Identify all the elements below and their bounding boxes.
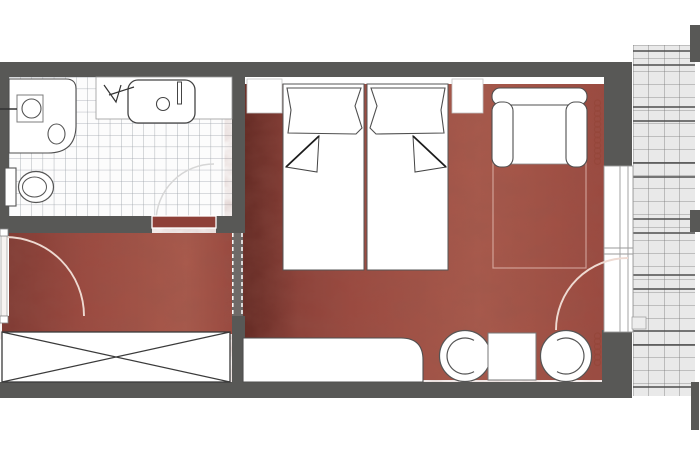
bathroom-door-leaf [152,216,216,228]
toilet-tank [5,168,16,206]
wall-top [0,62,632,77]
hall-carpet-texture [2,233,232,334]
sofa-armrest-right [566,102,587,167]
sofa-armrest-left [492,102,513,167]
nightstand-right [452,79,483,113]
toilet-icon [19,172,54,203]
balcony-tiles-icon [633,45,695,396]
wall-bottom [0,382,632,398]
wall-bathroom-hall-left [0,216,152,233]
window-frame [604,166,633,332]
balcony-door-threshold [632,317,646,329]
wall-right-lower [602,330,632,398]
sink-drain-icon [157,98,170,111]
entry-door-leaf [1,236,7,316]
wall-middle-upper [232,62,245,233]
wall-left [0,62,9,236]
balcony-railing-post-bottom [691,382,699,430]
headboard-strip [245,77,604,84]
wall-right-upper [604,62,632,166]
table-icon [488,333,536,380]
desk-icon [243,338,423,382]
pillow-1 [287,88,362,134]
balcony [633,25,700,430]
wall-bathroom-hall-right [216,216,232,233]
nightstand-left [247,79,282,113]
radiator-coil-icon-bottom [594,333,600,366]
sofa-seat [511,104,568,164]
pillow-2 [370,88,445,134]
balcony-railing-post-middle [690,210,700,232]
floor-plan-page [0,0,700,450]
sink-faucet-icon [178,82,182,104]
balcony-railing-post-top [690,25,700,62]
entry-door-post-top [0,229,8,236]
entry-door-post-bottom [0,316,8,323]
floor-plan-drawing [0,0,700,450]
tub-faucet-control-icon [22,99,41,118]
tub-drain-icon [48,124,65,144]
